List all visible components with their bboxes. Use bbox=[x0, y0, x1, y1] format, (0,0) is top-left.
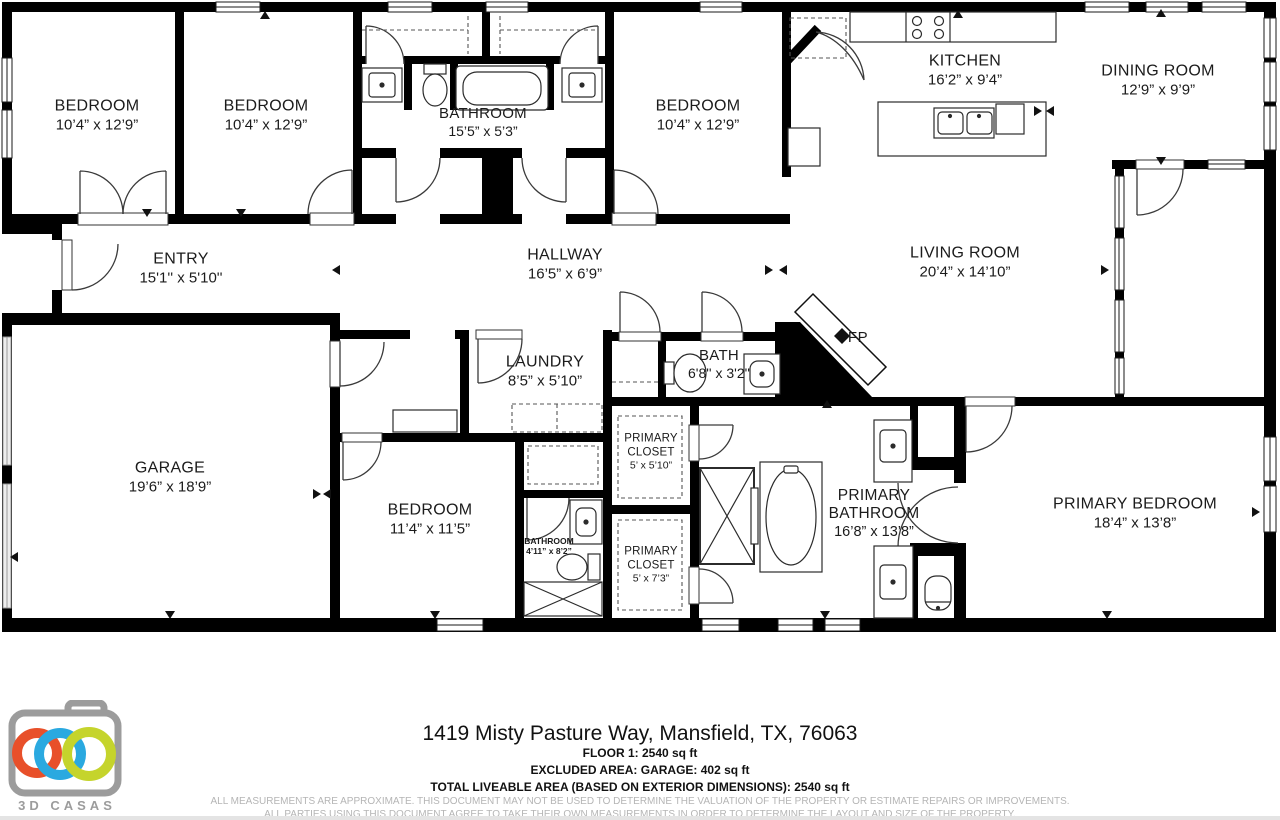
room-label-bath: BATH 6'8'' x 3'2'' bbox=[688, 347, 750, 381]
room-name: BEDROOM bbox=[55, 98, 140, 117]
disclaimer-line-1: ALL MEASUREMENTS ARE APPROXIMATE. THIS D… bbox=[0, 796, 1280, 807]
floor-plan-canvas bbox=[0, 0, 1280, 700]
excluded-area-text: EXCLUDED AREA: GARAGE: 402 sq ft bbox=[0, 763, 1280, 777]
room-label-hallway: HALLWAY 16’5” x 6’9” bbox=[527, 247, 603, 284]
room-label-primary-closet-2: PRIMARY CLOSET 5’ x 7’3” bbox=[620, 545, 682, 585]
room-label-primary-bathroom: PRIMARY BATHROOM 16’8” x 13’8” bbox=[818, 487, 930, 541]
room-label-entry: ENTRY 15'1'' x 5'10'' bbox=[139, 251, 222, 288]
walls-layer bbox=[2, 2, 1276, 632]
room-label-kitchen: KITCHEN 16’2” x 9’4” bbox=[928, 53, 1002, 90]
floor-area-text: FLOOR 1: 2540 sq ft bbox=[0, 746, 1280, 760]
total-area-text: TOTAL LIVEABLE AREA (BASED ON EXTERIOR D… bbox=[0, 780, 1280, 794]
room-label-small-bathroom: BATHROOM 4’11” x 8’2” bbox=[524, 536, 573, 556]
room-label-garage: GARAGE 19’6” x 18’9” bbox=[129, 460, 212, 497]
room-label-dining-room: DINING ROOM 12’9” x 9’9” bbox=[1101, 63, 1215, 100]
room-label-laundry: LAUNDRY 8’5” x 5’10” bbox=[506, 354, 584, 391]
room-label-primary-closet-1: PRIMARY CLOSET 5’ x 5’10” bbox=[620, 432, 682, 472]
room-label-bedroom-3: BEDROOM 10’4” x 12’9” bbox=[656, 98, 741, 135]
bottom-edge-bar bbox=[0, 816, 1280, 820]
room-label-fireplace: FP bbox=[848, 329, 868, 347]
room-label-hall-bathroom: BATHROOM 15’5” x 5’3” bbox=[439, 105, 527, 139]
room-label-primary-bedroom: PRIMARY BEDROOM 18’4” x 13’8” bbox=[1053, 496, 1217, 533]
room-label-bedroom-4: BEDROOM 11’4” x 11’5” bbox=[388, 502, 473, 539]
room-label-bedroom-2: BEDROOM 10’4” x 12’9” bbox=[224, 98, 309, 135]
brand-name: 3D CASAS bbox=[6, 798, 128, 813]
floor-plan-page: BEDROOM 10’4” x 12’9” BEDROOM 10’4” x 12… bbox=[0, 0, 1280, 820]
room-label-bedroom-1: BEDROOM 10’4” x 12’9” bbox=[55, 98, 140, 135]
room-label-living-room: LIVING ROOM 20’4” x 14’10” bbox=[910, 245, 1020, 282]
room-dims: 10’4” x 12’9” bbox=[55, 117, 140, 135]
property-address: 1419 Misty Pasture Way, Mansfield, TX, 7… bbox=[0, 722, 1280, 746]
camera-logo-icon bbox=[6, 700, 128, 800]
